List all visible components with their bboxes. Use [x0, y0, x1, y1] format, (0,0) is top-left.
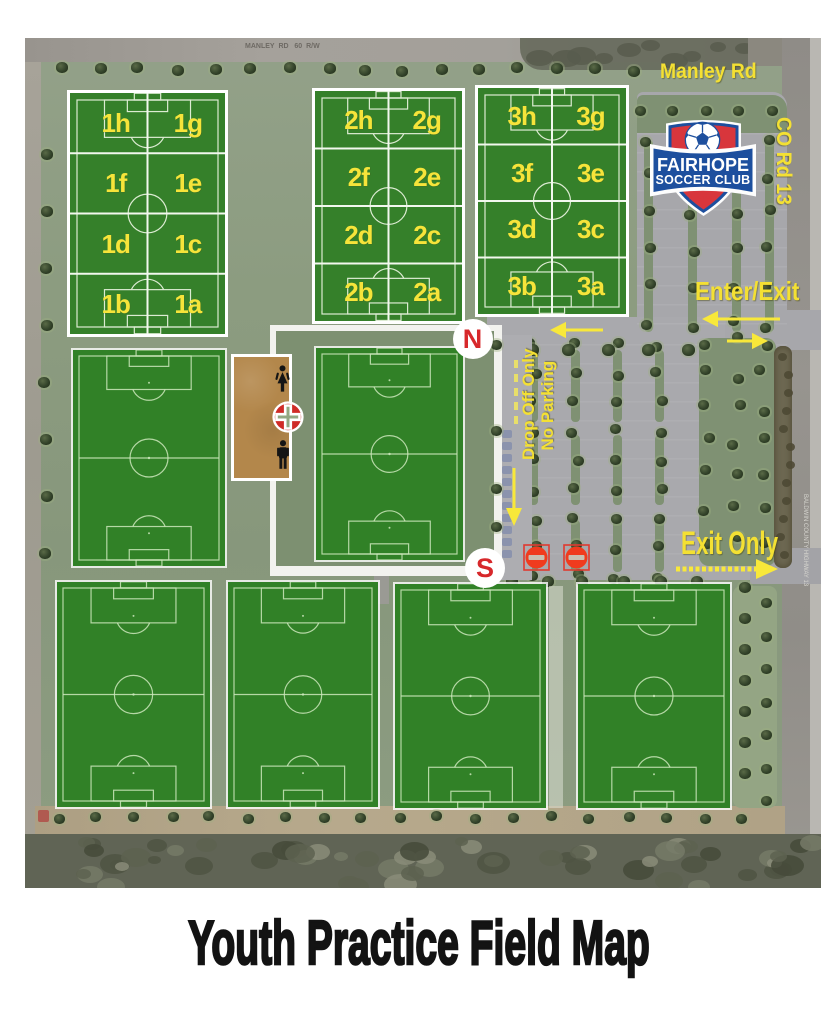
svg-text:ALABAMA: ALABAMA [689, 196, 717, 202]
